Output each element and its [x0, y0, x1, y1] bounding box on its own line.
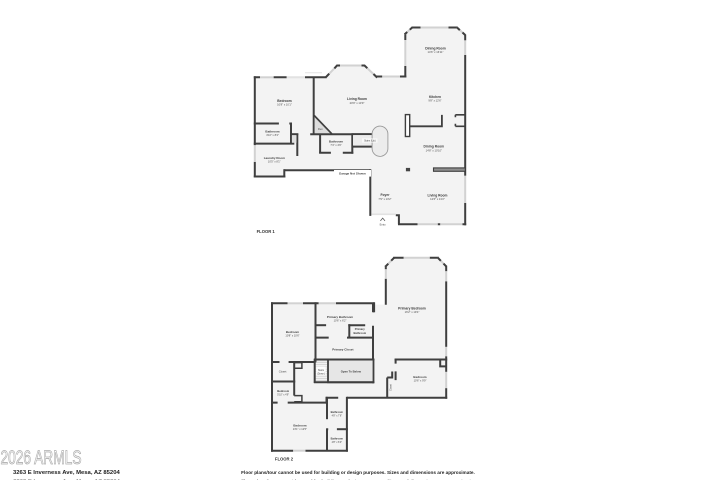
svg-text:14'6" x 16'11": 14'6" x 16'11" [427, 50, 443, 54]
svg-text:10'8" x 10'6": 10'8" x 10'6" [285, 334, 299, 338]
svg-text:2026 ARMLS: 2026 ARMLS [1, 447, 82, 469]
svg-text:Living Room: Living Room [428, 193, 448, 197]
svg-text:4'8" x 6'0": 4'8" x 6'0" [332, 441, 343, 444]
svg-text:13'1" x 12'5": 13'1" x 12'5" [293, 427, 307, 431]
svg-text:Floor plans/tour cannot be use: Floor plans/tour cannot be used for buil… [241, 470, 475, 475]
svg-text:Bathroom: Bathroom [353, 331, 366, 335]
svg-text:Primary: Primary [355, 327, 366, 331]
svg-text:FLOOR 1: FLOOR 1 [257, 229, 276, 234]
svg-text:5'10" x 4'9": 5'10" x 4'9" [277, 393, 289, 396]
svg-text:Bedroom: Bedroom [413, 375, 427, 379]
svg-text:Entry: Entry [380, 223, 387, 227]
svg-text:Bedroom: Bedroom [277, 389, 289, 393]
svg-text:16'2" x 19'4": 16'2" x 19'4" [405, 310, 420, 314]
svg-text:20'9" x 13'9": 20'9" x 13'9" [350, 101, 365, 105]
svg-text:Open To Below: Open To Below [341, 370, 362, 374]
svg-text:10'8" x 10'1": 10'8" x 10'1" [277, 103, 292, 107]
svg-text:7'4" x 4'9": 7'4" x 4'9" [330, 143, 341, 147]
svg-text:Bedroom: Bedroom [286, 330, 300, 334]
svg-text:4'10" x 8'4": 4'10" x 8'4" [266, 133, 279, 137]
svg-text:Primary Closet: Primary Closet [332, 347, 353, 351]
svg-text:(Down): (Down) [317, 372, 325, 375]
svg-text:Primary Bedroom: Primary Bedroom [398, 306, 426, 310]
svg-text:10'5" x 8'1": 10'5" x 8'1" [268, 160, 281, 164]
svg-text:Bedroom: Bedroom [277, 99, 292, 103]
svg-text:Living Room: Living Room [347, 97, 367, 101]
svg-text:Bedroom: Bedroom [293, 424, 307, 428]
svg-text:Bathroom: Bathroom [331, 410, 344, 414]
svg-text:Dining Room: Dining Room [425, 47, 446, 51]
svg-text:Bathroom: Bathroom [329, 140, 343, 144]
svg-text:Bathroom: Bathroom [331, 437, 344, 441]
svg-text:7'9" x 13'2": 7'9" x 13'2" [378, 197, 391, 201]
svg-text:10'6" x 6'2": 10'6" x 6'2" [334, 319, 347, 323]
svg-text:Dining Room: Dining Room [424, 145, 445, 149]
svg-text:Kitchen: Kitchen [429, 95, 441, 99]
svg-text:12'6" x 13'2": 12'6" x 13'2" [430, 197, 445, 201]
svg-text:Bathroom: Bathroom [265, 130, 279, 134]
svg-text:10'6" x 9'9": 10'6" x 9'9" [414, 379, 427, 383]
svg-text:Flex: Flex [318, 128, 323, 131]
svg-text:Foyer: Foyer [381, 193, 391, 197]
svg-text:Garage Not Shown: Garage Not Shown [339, 172, 366, 176]
svg-text:FLOOR 2: FLOOR 2 [275, 457, 294, 462]
svg-text:Primary Bathroom: Primary Bathroom [327, 315, 354, 319]
svg-text:Closet: Closet [390, 384, 393, 391]
svg-text:Closet: Closet [279, 369, 287, 373]
svg-text:3263 E Inverness Ave, Mesa, AZ: 3263 E Inverness Ave, Mesa, AZ 85204 [13, 470, 120, 476]
svg-text:Stairs (Up): Stairs (Up) [364, 140, 376, 143]
svg-text:9'8" x 12'6": 9'8" x 12'6" [428, 99, 441, 103]
svg-text:14'8" x 10'10": 14'8" x 10'10" [426, 148, 442, 152]
svg-text:4'8" x 7'6": 4'8" x 7'6" [332, 414, 343, 417]
svg-text:Laundry Room: Laundry Room [264, 156, 285, 160]
